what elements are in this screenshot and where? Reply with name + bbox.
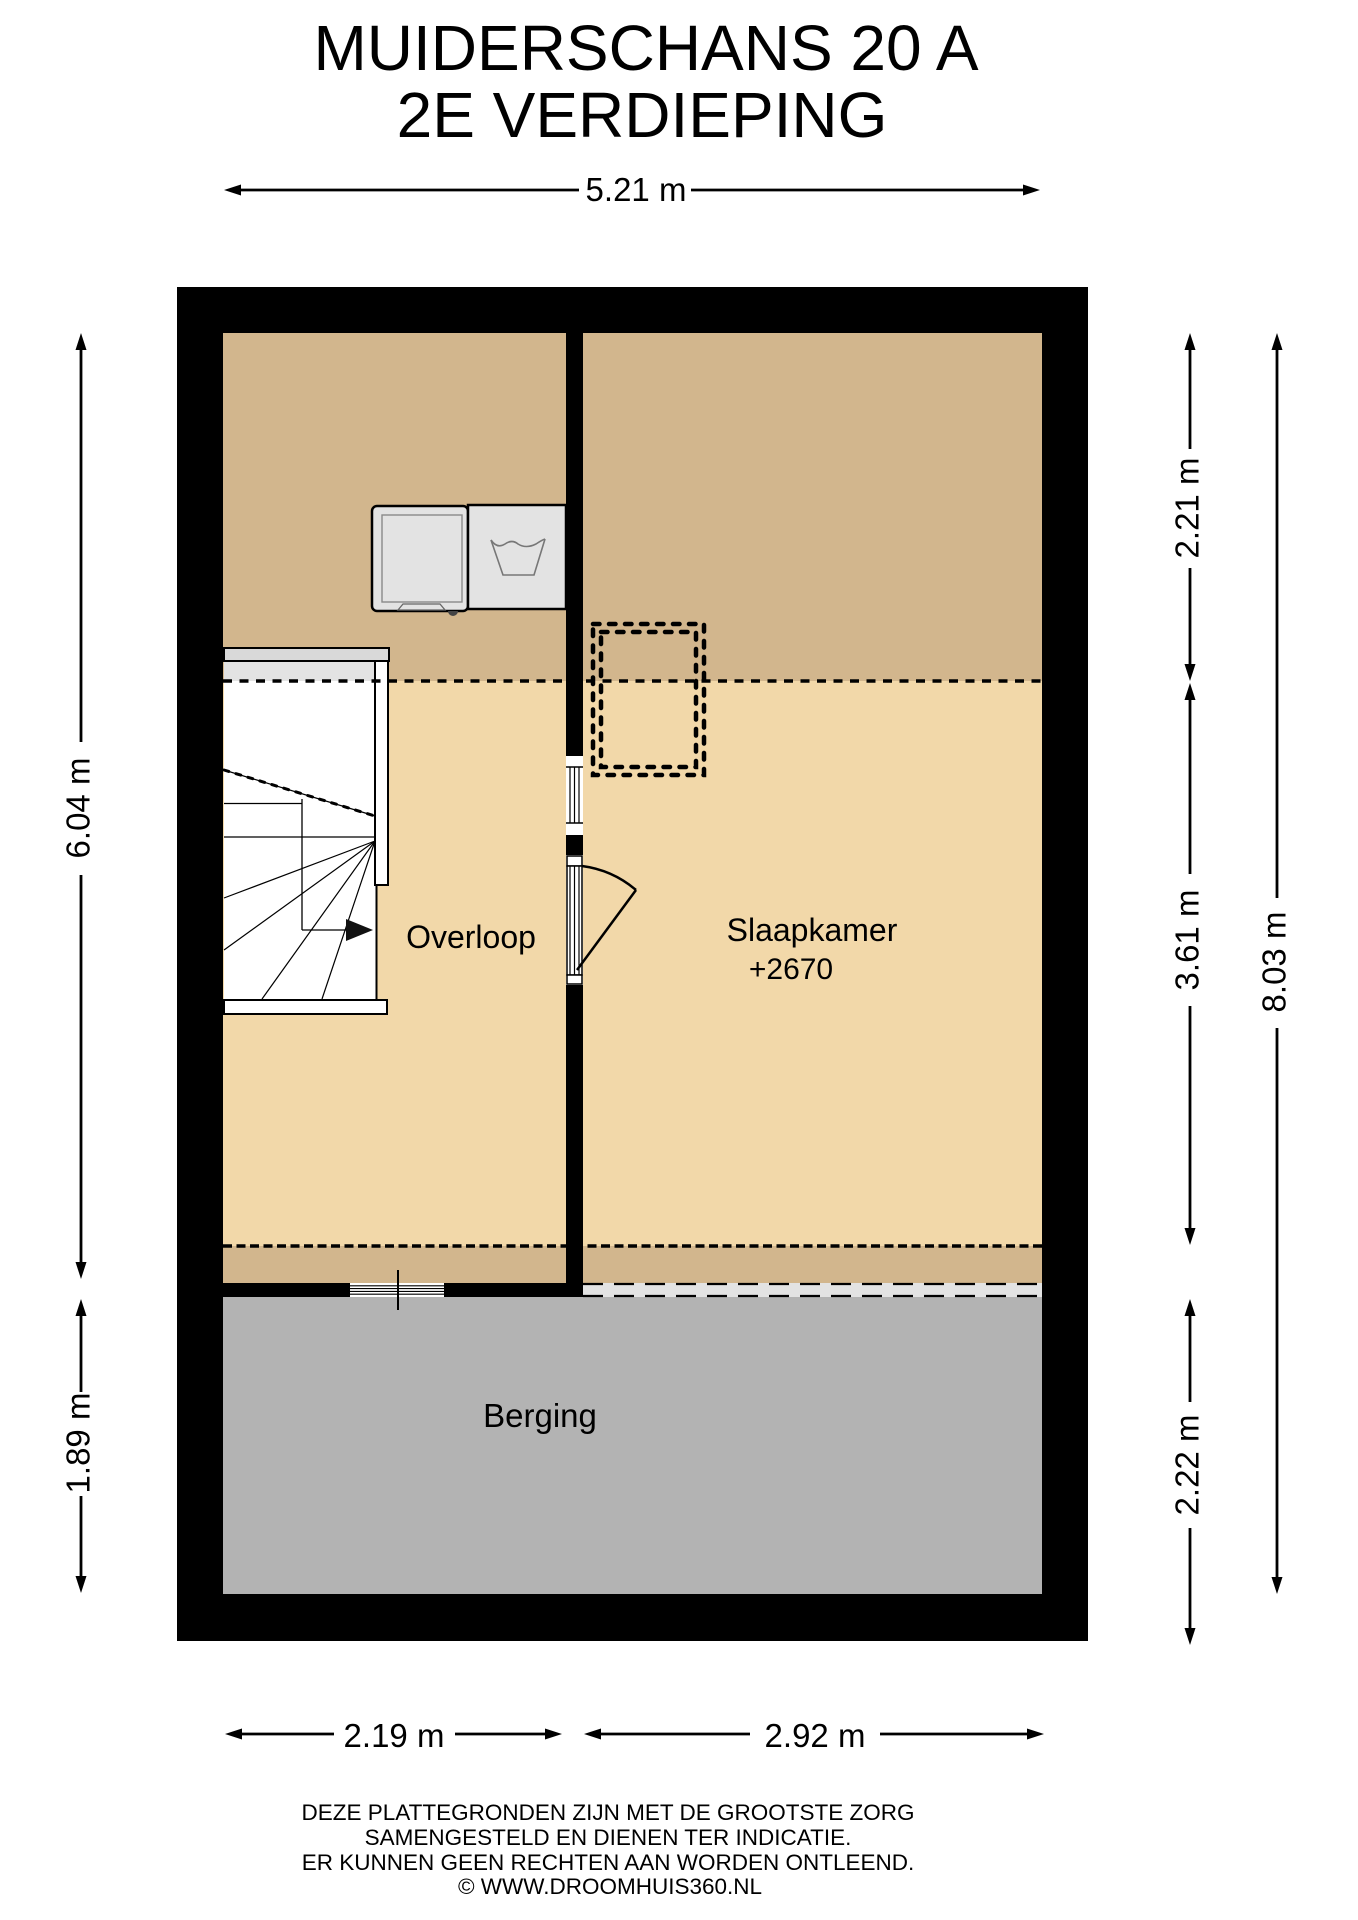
svg-text:2.19 m: 2.19 m (344, 1717, 445, 1754)
svg-text:3.61 m: 3.61 m (1169, 890, 1206, 991)
svg-text:DEZE PLATTEGRONDEN ZIJN MET DE: DEZE PLATTEGRONDEN ZIJN MET DE GROOTSTE … (302, 1800, 915, 1825)
svg-text:1.89 m: 1.89 m (60, 1393, 97, 1494)
svg-text:MUIDERSCHANS 20 A: MUIDERSCHANS 20 A (313, 12, 978, 84)
svg-text:2.22 m: 2.22 m (1169, 1415, 1206, 1516)
svg-text:SAMENGESTELD EN DIENEN TER IND: SAMENGESTELD EN DIENEN TER INDICATIE. (365, 1825, 852, 1850)
svg-text:2.21 m: 2.21 m (1169, 458, 1206, 559)
svg-text:8.03 m: 8.03 m (1256, 912, 1293, 1013)
svg-text:+2670: +2670 (749, 953, 833, 986)
svg-text:Slaapkamer: Slaapkamer (727, 912, 898, 948)
svg-text:Overloop: Overloop (406, 919, 536, 955)
svg-text:2E VERDIEPING: 2E VERDIEPING (397, 79, 888, 151)
svg-text:ER KUNNEN GEEN RECHTEN AAN WOR: ER KUNNEN GEEN RECHTEN AAN WORDEN ONTLEE… (302, 1850, 915, 1875)
svg-text:2.92 m: 2.92 m (765, 1717, 866, 1754)
svg-text:© WWW.DROOMHUIS360.NL: © WWW.DROOMHUIS360.NL (458, 1874, 762, 1899)
svg-text:Berging: Berging (483, 1397, 597, 1434)
svg-text:6.04 m: 6.04 m (60, 758, 97, 859)
svg-text:5.21 m: 5.21 m (586, 171, 687, 208)
